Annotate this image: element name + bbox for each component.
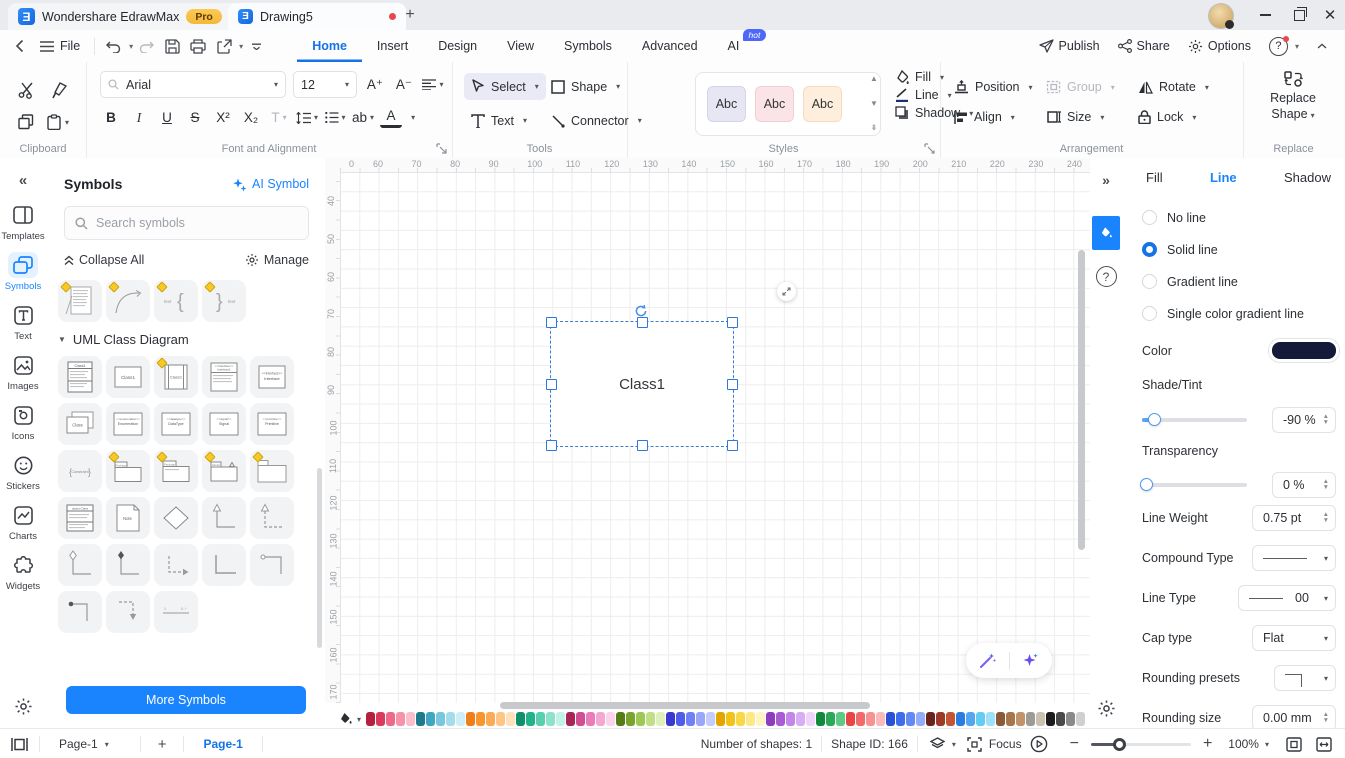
page-select-dropdown[interactable]: Page-1	[59, 737, 98, 751]
symbol-model[interactable]: Model	[202, 450, 246, 492]
underline-button[interactable]: U	[156, 106, 178, 129]
color-swatch[interactable]	[446, 712, 455, 726]
more-symbols-button[interactable]: More Symbols	[66, 686, 306, 714]
color-swatch[interactable]	[1046, 712, 1055, 726]
menu-tab-insert[interactable]: Insert	[362, 30, 423, 62]
ruler-label: 130	[329, 534, 339, 549]
style-scroll-up[interactable]: ▲	[870, 74, 878, 83]
save-button[interactable]	[159, 34, 185, 58]
radio-icon	[1142, 210, 1157, 225]
svg-text:<<enumeration>>: <<enumeration>>	[116, 417, 140, 421]
color-swatch[interactable]	[586, 712, 595, 726]
ruler-label: 140	[329, 571, 339, 586]
back-button[interactable]	[6, 34, 32, 58]
resize-handle-ne[interactable]	[727, 317, 738, 328]
radio-icon	[1142, 274, 1157, 289]
zoom-slider[interactable]	[1091, 743, 1191, 746]
sidebar-item-symbols[interactable]: Symbols	[2, 252, 44, 292]
line-option-gradient-line[interactable]: Gradient line	[1142, 274, 1336, 289]
symbol-text-block[interactable]	[58, 280, 102, 322]
document-tab[interactable]: Ǝ Drawing5	[228, 3, 406, 30]
zoom-level[interactable]: 100%	[1228, 737, 1259, 751]
ruler-label: 120	[604, 159, 619, 169]
page-tab[interactable]: Page-1	[203, 737, 242, 751]
color-swatch[interactable]	[706, 712, 715, 726]
svg-text:Package: Package	[116, 463, 127, 467]
minimize-button[interactable]	[1248, 0, 1282, 30]
sidebar-item-images[interactable]: Images	[2, 352, 44, 392]
symbol-subsystem[interactable]	[250, 450, 294, 492]
color-swatch[interactable]	[536, 712, 545, 726]
right-tool-strip: » ?	[1090, 158, 1123, 728]
menu-tab-view[interactable]: View	[492, 30, 549, 62]
print-button[interactable]	[185, 34, 211, 58]
symbol-arc-connector[interactable]	[106, 280, 150, 322]
color-swatch[interactable]	[486, 712, 495, 726]
increase-font-button[interactable]: A⁺	[364, 73, 386, 96]
quick-color-strip: ▾	[325, 710, 1090, 728]
color-swatch[interactable]	[456, 712, 465, 726]
manage-symbols-button[interactable]: Manage	[245, 253, 309, 267]
ruler-label: 210	[951, 159, 966, 169]
sidebar-item-templates[interactable]: Templates	[2, 202, 44, 242]
more-tools-button[interactable]	[243, 34, 269, 58]
symbol-datatype[interactable]: <<datatype>>DataType	[154, 403, 198, 445]
color-swatch[interactable]	[916, 712, 925, 726]
font-family-select[interactable]: Arial ▾	[100, 71, 286, 98]
resize-handle-w[interactable]	[546, 379, 557, 390]
avatar[interactable]	[1208, 3, 1234, 29]
shapes-count: Number of shapes: 1	[701, 737, 812, 751]
shade-slider[interactable]	[1142, 418, 1247, 422]
app-tab[interactable]: Ǝ Wondershare EdrawMax Pro	[8, 3, 240, 30]
color-swatch[interactable]	[936, 712, 945, 726]
symbol-package-labeled[interactable]: Package	[154, 450, 198, 492]
ruler-label: 80	[450, 159, 460, 169]
symbol-multiple-class[interactable]: Class	[58, 403, 102, 445]
ruler-label: 110	[328, 458, 338, 472]
line-option-solid-line[interactable]: Solid line	[1142, 242, 1336, 257]
new-tab-button[interactable]: +	[400, 5, 420, 25]
color-swatch[interactable]	[666, 712, 675, 726]
svg-text:Note: Note	[123, 516, 133, 521]
fill-panel-tile[interactable]	[1092, 216, 1120, 250]
sidebar-item-text[interactable]: Text	[2, 302, 44, 342]
sidebar-item-icons[interactable]: Icons	[2, 402, 44, 442]
symbol-class-with-members[interactable]: Class1	[58, 356, 102, 398]
symbol-association-connector[interactable]	[202, 544, 246, 586]
symbol-composition-left[interactable]	[58, 591, 102, 633]
color-swatch[interactable]	[806, 712, 815, 726]
list-button[interactable]: ▾	[324, 106, 346, 129]
ruler-label: 200	[913, 159, 928, 169]
format-tab-fill[interactable]: Fill	[1146, 170, 1163, 185]
ruler-label: 170	[329, 685, 339, 700]
symbol-section-header[interactable]: ▼UML Class Diagram	[58, 332, 311, 347]
symbol-primitive[interactable]: <<primitive>>Primitive	[250, 403, 294, 445]
color-swatch[interactable]	[376, 712, 385, 726]
symbol-search-input[interactable]: Search symbols	[64, 206, 309, 240]
symbols-list: text{}text ▼UML Class Diagram Class1Clas…	[56, 280, 311, 678]
divider	[94, 38, 95, 55]
color-swatch[interactable]	[896, 712, 905, 726]
ruler-label: 90	[489, 159, 499, 169]
line-option-no-line[interactable]: No line	[1142, 210, 1336, 225]
color-swatch[interactable]	[626, 712, 635, 726]
options-button[interactable]: Options	[1180, 34, 1259, 58]
text-case-button[interactable]: T▾	[268, 106, 290, 129]
ai-sparkle-icon[interactable]	[1021, 651, 1040, 670]
svg-text:<<primitive>>: <<primitive>>	[263, 417, 281, 421]
svg-text:<<Interface>>: <<Interface>>	[262, 372, 283, 376]
color-swatch[interactable]	[426, 712, 435, 726]
font-dialog-launcher[interactable]	[436, 143, 447, 154]
color-swatch[interactable]	[436, 712, 445, 726]
sidebar-settings-icon[interactable]	[14, 697, 33, 716]
cap-type-dropdown[interactable]: Flat▾	[1252, 625, 1336, 651]
color-swatch[interactable]	[836, 712, 845, 726]
color-swatch[interactable]	[546, 712, 555, 726]
color-swatch[interactable]	[656, 712, 665, 726]
resize-handle-nw[interactable]	[546, 317, 557, 328]
color-swatch[interactable]	[596, 712, 605, 726]
svg-text:text: text	[228, 299, 236, 304]
text-icon	[8, 302, 38, 328]
color-swatch[interactable]	[396, 712, 405, 726]
symbols-panel-title: Symbols	[64, 176, 122, 192]
menu-tab-home[interactable]: Home	[297, 30, 362, 62]
symbol-object[interactable]: object:Class	[58, 497, 102, 539]
vertical-scrollbar[interactable]	[1078, 250, 1085, 550]
color-swatch[interactable]	[616, 712, 625, 726]
font-color-button[interactable]: A	[380, 107, 402, 128]
close-button[interactable]: ✕	[1313, 0, 1345, 30]
menu-tab-advanced[interactable]: Advanced	[627, 30, 713, 62]
page-overview-icon[interactable]	[8, 733, 30, 755]
color-swatch[interactable]	[1076, 712, 1085, 726]
symbol-constraint[interactable]: {Constraint}	[58, 450, 102, 492]
color-swatch[interactable]	[406, 712, 415, 726]
format-tab-line[interactable]: Line	[1210, 170, 1237, 185]
styles-dialog-launcher[interactable]	[924, 143, 935, 154]
color-swatch[interactable]	[986, 712, 995, 726]
restore-button[interactable]	[1282, 0, 1316, 30]
ribbon: ▾ Clipboard Arial ▾ 12▾ A⁺ A⁻	[0, 62, 1345, 159]
color-swatch[interactable]	[726, 712, 735, 726]
symbol-signal[interactable]: <<signal>>Signal	[202, 403, 246, 445]
presentation-play-icon[interactable]	[1028, 733, 1050, 755]
color-swatch[interactable]	[366, 712, 375, 726]
color-swatch[interactable]	[476, 712, 485, 726]
format-painter-button[interactable]	[42, 74, 74, 106]
color-swatch[interactable]	[746, 712, 755, 726]
color-swatch[interactable]	[1016, 712, 1025, 726]
copy-button[interactable]	[10, 106, 42, 138]
svg-text:Primitive: Primitive	[265, 422, 279, 426]
color-swatch[interactable]	[876, 712, 885, 726]
symbol-right-brace[interactable]: }text	[202, 280, 246, 322]
rotate-button[interactable]: Rotate▾	[1138, 80, 1226, 94]
collapse-panel-icon[interactable]: «	[19, 172, 27, 189]
symbol-class[interactable]: Class1	[106, 356, 150, 398]
color-swatch[interactable]	[966, 712, 975, 726]
styles-section: AbcAbcAbc ▲ ▼ ⇟ Fill▾ Line▾ Shadow▾	[627, 62, 941, 158]
zoom-out-button[interactable]: −	[1070, 735, 1079, 753]
color-swatch[interactable]	[496, 712, 505, 726]
document-tab-title: Drawing5	[260, 10, 313, 24]
color-swatch[interactable]	[416, 712, 425, 726]
line-color-swatch[interactable]	[1272, 342, 1336, 359]
sidebar-item-stickers[interactable]: Stickers	[2, 452, 44, 492]
fit-width-icon[interactable]	[1313, 733, 1335, 755]
color-swatch[interactable]	[956, 712, 965, 726]
symbol-dependency-down[interactable]	[106, 591, 150, 633]
transparency-spinner[interactable]: 0 %▲▼	[1272, 472, 1336, 498]
templates-icon	[8, 202, 38, 228]
ai-assistant-pill	[966, 643, 1052, 678]
color-swatch[interactable]	[736, 712, 745, 726]
canvas-settings-gear-icon[interactable]	[1097, 699, 1116, 718]
symbol-interface-with-operations[interactable]: <<interface>>Interface1	[202, 356, 246, 398]
svg-text:1: 1	[164, 607, 166, 611]
compound-type-dropdown[interactable]: ▾	[1252, 545, 1336, 571]
symbol-package[interactable]: Package	[106, 450, 150, 492]
color-swatch[interactable]	[946, 712, 955, 726]
title-bar: Ǝ Wondershare EdrawMax Pro Ǝ Drawing5 + …	[0, 0, 1345, 30]
font-color-dropdown[interactable]: ▾	[411, 113, 415, 122]
collapse-all-button[interactable]: Collapse All	[64, 253, 144, 267]
color-swatch[interactable]	[676, 712, 685, 726]
align-button[interactable]: ▾	[422, 73, 444, 96]
svg-text:Signal: Signal	[219, 422, 229, 426]
svg-text:0..*: 0..*	[181, 607, 187, 611]
unsaved-dot-icon	[389, 13, 396, 20]
collapse-ribbon-button[interactable]	[1309, 34, 1335, 58]
symbol-realization-connector[interactable]	[154, 544, 198, 586]
cut-button[interactable]	[10, 74, 42, 106]
layers-icon[interactable]	[927, 733, 949, 755]
add-page-button[interactable]: +	[158, 736, 167, 753]
color-swatch[interactable]	[926, 712, 935, 726]
italic-button[interactable]: I	[128, 106, 150, 129]
menu-tab-symbols[interactable]: Symbols	[549, 30, 627, 62]
replace-shape-button[interactable]: Replace Shape▾	[1261, 70, 1325, 122]
style-preset-3[interactable]: Abc	[803, 86, 842, 122]
symbol-composition-connector[interactable]	[106, 544, 150, 586]
sidebar-item-charts[interactable]: Charts	[2, 502, 44, 542]
transparency-slider[interactable]	[1142, 483, 1247, 487]
color-swatch[interactable]	[686, 712, 695, 726]
color-swatch[interactable]	[576, 712, 585, 726]
color-swatch[interactable]	[466, 712, 475, 726]
radio-icon	[1142, 306, 1157, 321]
resize-handle-e[interactable]	[727, 379, 738, 390]
symbol-left-brace[interactable]: text{	[154, 280, 198, 322]
style-scroll-down[interactable]: ▼	[870, 99, 878, 108]
zoom-in-button[interactable]: +	[1203, 735, 1212, 753]
ruler-label: 160	[759, 159, 774, 169]
color-swatch[interactable]	[1026, 712, 1035, 726]
focus-label[interactable]: Focus	[989, 737, 1022, 751]
color-row: Color	[1142, 342, 1336, 359]
text-spacing-button[interactable]: ab▾	[352, 106, 374, 129]
svg-text:object:Class: object:Class	[72, 506, 89, 510]
color-swatch[interactable]	[1036, 712, 1045, 726]
color-swatch[interactable]	[856, 712, 865, 726]
color-swatch[interactable]	[1006, 712, 1015, 726]
ai-symbol-button[interactable]: AI Symbol	[232, 177, 309, 192]
help-button[interactable]: ?▾	[1261, 34, 1307, 58]
expand-panel-icon[interactable]: »	[1102, 172, 1110, 188]
color-swatch[interactable]	[506, 712, 515, 726]
line-option-single-color-gradient-line[interactable]: Single color gradient line	[1142, 306, 1336, 321]
style-gallery-more[interactable]: ⇟	[871, 123, 878, 132]
symbol-interface[interactable]: <<Interface>>Interface	[250, 356, 294, 398]
transparency-label-row: Transparency	[1142, 444, 1336, 458]
symbol-multiplicity-link[interactable]: 10..*	[154, 591, 198, 633]
line-weight-spinner[interactable]: 0.75 pt▲▼	[1252, 505, 1336, 531]
color-swatch[interactable]	[646, 712, 655, 726]
line-type-dropdown[interactable]: 00▾	[1238, 585, 1336, 611]
ruler-label: 220	[990, 159, 1005, 169]
color-swatch[interactable]	[1056, 712, 1065, 726]
menu-tab-design[interactable]: Design	[423, 30, 492, 62]
color-swatch[interactable]	[526, 712, 535, 726]
color-swatch[interactable]	[786, 712, 795, 726]
decrease-font-button[interactable]: A⁻	[393, 73, 415, 96]
color-swatch[interactable]	[906, 712, 915, 726]
color-swatch[interactable]	[976, 712, 985, 726]
color-swatch[interactable]	[866, 712, 875, 726]
resize-handle-se[interactable]	[727, 440, 738, 451]
symbol-dependency-connector[interactable]	[250, 497, 294, 539]
horizontal-scrollbar[interactable]	[500, 702, 870, 709]
color-swatch[interactable]	[556, 712, 565, 726]
color-swatch[interactable]	[636, 712, 645, 726]
superscript-button[interactable]: X²	[212, 106, 234, 129]
shade-spinner[interactable]: -90 %▲▼	[1272, 407, 1336, 433]
share-button[interactable]: Share	[1110, 34, 1178, 58]
symbol-enumeration[interactable]: <<enumeration>>Enumeration	[106, 403, 150, 445]
symbol-active-class[interactable]: Class1	[154, 356, 198, 398]
sidebar-item-widgets[interactable]: Widgets	[2, 552, 44, 592]
size-button[interactable]: Size▾	[1046, 110, 1138, 124]
color-swatch[interactable]	[846, 712, 855, 726]
file-menu[interactable]: File	[32, 39, 88, 53]
panel-help-icon[interactable]: ?	[1096, 266, 1117, 287]
strikethrough-button[interactable]: S	[184, 106, 206, 129]
symbol-aggregation-connector[interactable]	[58, 544, 102, 586]
color-swatch[interactable]	[756, 712, 765, 726]
color-swatch[interactable]	[776, 712, 785, 726]
resize-handle-n[interactable]	[637, 317, 648, 328]
paste-button[interactable]: ▾	[42, 106, 74, 138]
symbols-scrollbar[interactable]	[317, 468, 322, 648]
color-swatch[interactable]	[566, 712, 575, 726]
selected-shape-class1[interactable]: Class1	[550, 321, 734, 447]
style-preset-2[interactable]: Abc	[755, 86, 794, 122]
ruler-corner	[325, 158, 341, 173]
resize-handle-sw[interactable]	[546, 440, 557, 451]
export-button[interactable]	[211, 34, 237, 58]
font-section: Arial ▾ 12▾ A⁺ A⁻ ▾ B I U S X² X₂ T▾	[86, 62, 453, 158]
ribbon-tab-strip: HomeInsertDesignViewSymbolsAdvancedAIhot	[297, 30, 754, 62]
color-swatch[interactable]	[796, 712, 805, 726]
search-icon	[75, 217, 88, 230]
svg-text:}: }	[88, 467, 91, 477]
ruler-label: 90	[326, 385, 336, 395]
symbol-directed-association[interactable]	[250, 544, 294, 586]
rounding-presets-dropdown[interactable]: ▾	[1274, 665, 1336, 691]
color-swatch[interactable]	[826, 712, 835, 726]
color-swatch[interactable]	[696, 712, 705, 726]
symbol-decision[interactable]	[154, 497, 198, 539]
color-swatch[interactable]	[386, 712, 395, 726]
svg-text:DataType: DataType	[168, 422, 183, 426]
app-tab-title: Wondershare EdrawMax	[42, 10, 179, 24]
resize-handle-s[interactable]	[637, 440, 648, 451]
redo-button[interactable]	[133, 34, 159, 58]
position-button[interactable]: Position▾	[954, 80, 1046, 94]
format-tab-shadow[interactable]: Shadow	[1284, 170, 1331, 185]
lock-button[interactable]: Lock▾	[1138, 110, 1226, 124]
ruler-label: 80	[326, 347, 336, 357]
ruler-label: 50	[326, 234, 336, 244]
bold-button[interactable]: B	[100, 106, 122, 129]
expand-canvas-icon[interactable]	[777, 282, 796, 301]
font-size-select[interactable]: 12▾	[293, 71, 357, 98]
color-swatch[interactable]	[766, 712, 775, 726]
select-tool-button[interactable]: Select▾	[464, 73, 546, 100]
style-preset-1[interactable]: Abc	[707, 86, 746, 122]
color-swatch[interactable]	[886, 712, 895, 726]
menu-right-group: Publish Share Options ?▾	[1031, 34, 1345, 58]
edrawmax-window: Ǝ Wondershare EdrawMax Pro Ǝ Drawing5 + …	[0, 0, 1345, 758]
menu-bar: File ▾ ▾ HomeInsertDesignViewSymbolsAdva…	[0, 30, 1345, 62]
symbols-icon	[8, 252, 38, 278]
color-swatch[interactable]	[816, 712, 825, 726]
horizontal-ruler: 0607080901001101201301401501601701801902…	[340, 158, 1090, 173]
menu-tab-ai[interactable]: AIhot	[713, 30, 755, 62]
fill-bucket-icon[interactable]: ▾	[338, 712, 361, 726]
color-swatch[interactable]	[516, 712, 525, 726]
text-tool-button[interactable]: Text▾	[464, 107, 546, 134]
ruler-label: 100	[329, 420, 339, 435]
color-swatch[interactable]	[1066, 712, 1075, 726]
symbol-note[interactable]: Note	[106, 497, 150, 539]
color-swatch[interactable]	[996, 712, 1005, 726]
focus-icon[interactable]	[964, 733, 986, 755]
symbol-generalization-connector[interactable]	[202, 497, 246, 539]
ruler-label: 180	[836, 159, 851, 169]
magic-wand-icon[interactable]	[978, 651, 997, 670]
undo-button[interactable]	[101, 34, 127, 58]
align-button-arr[interactable]: Align▾	[954, 110, 1046, 124]
line-spacing-button[interactable]: ▾	[296, 106, 318, 129]
clipboard-section: ▾ Clipboard	[0, 62, 87, 158]
color-swatch[interactable]	[606, 712, 615, 726]
ruler-label: 100	[527, 159, 542, 169]
subscript-button[interactable]: X₂	[240, 106, 262, 129]
color-swatch[interactable]	[716, 712, 725, 726]
fit-to-window-icon[interactable]	[1283, 733, 1305, 755]
publish-button[interactable]: Publish	[1031, 34, 1108, 58]
rotate-handle-icon[interactable]	[634, 304, 648, 318]
widgets-icon	[8, 552, 38, 578]
group-button[interactable]: Group▾	[1046, 80, 1138, 94]
radio-icon	[1142, 242, 1157, 257]
svg-text:Class1: Class1	[121, 375, 135, 380]
